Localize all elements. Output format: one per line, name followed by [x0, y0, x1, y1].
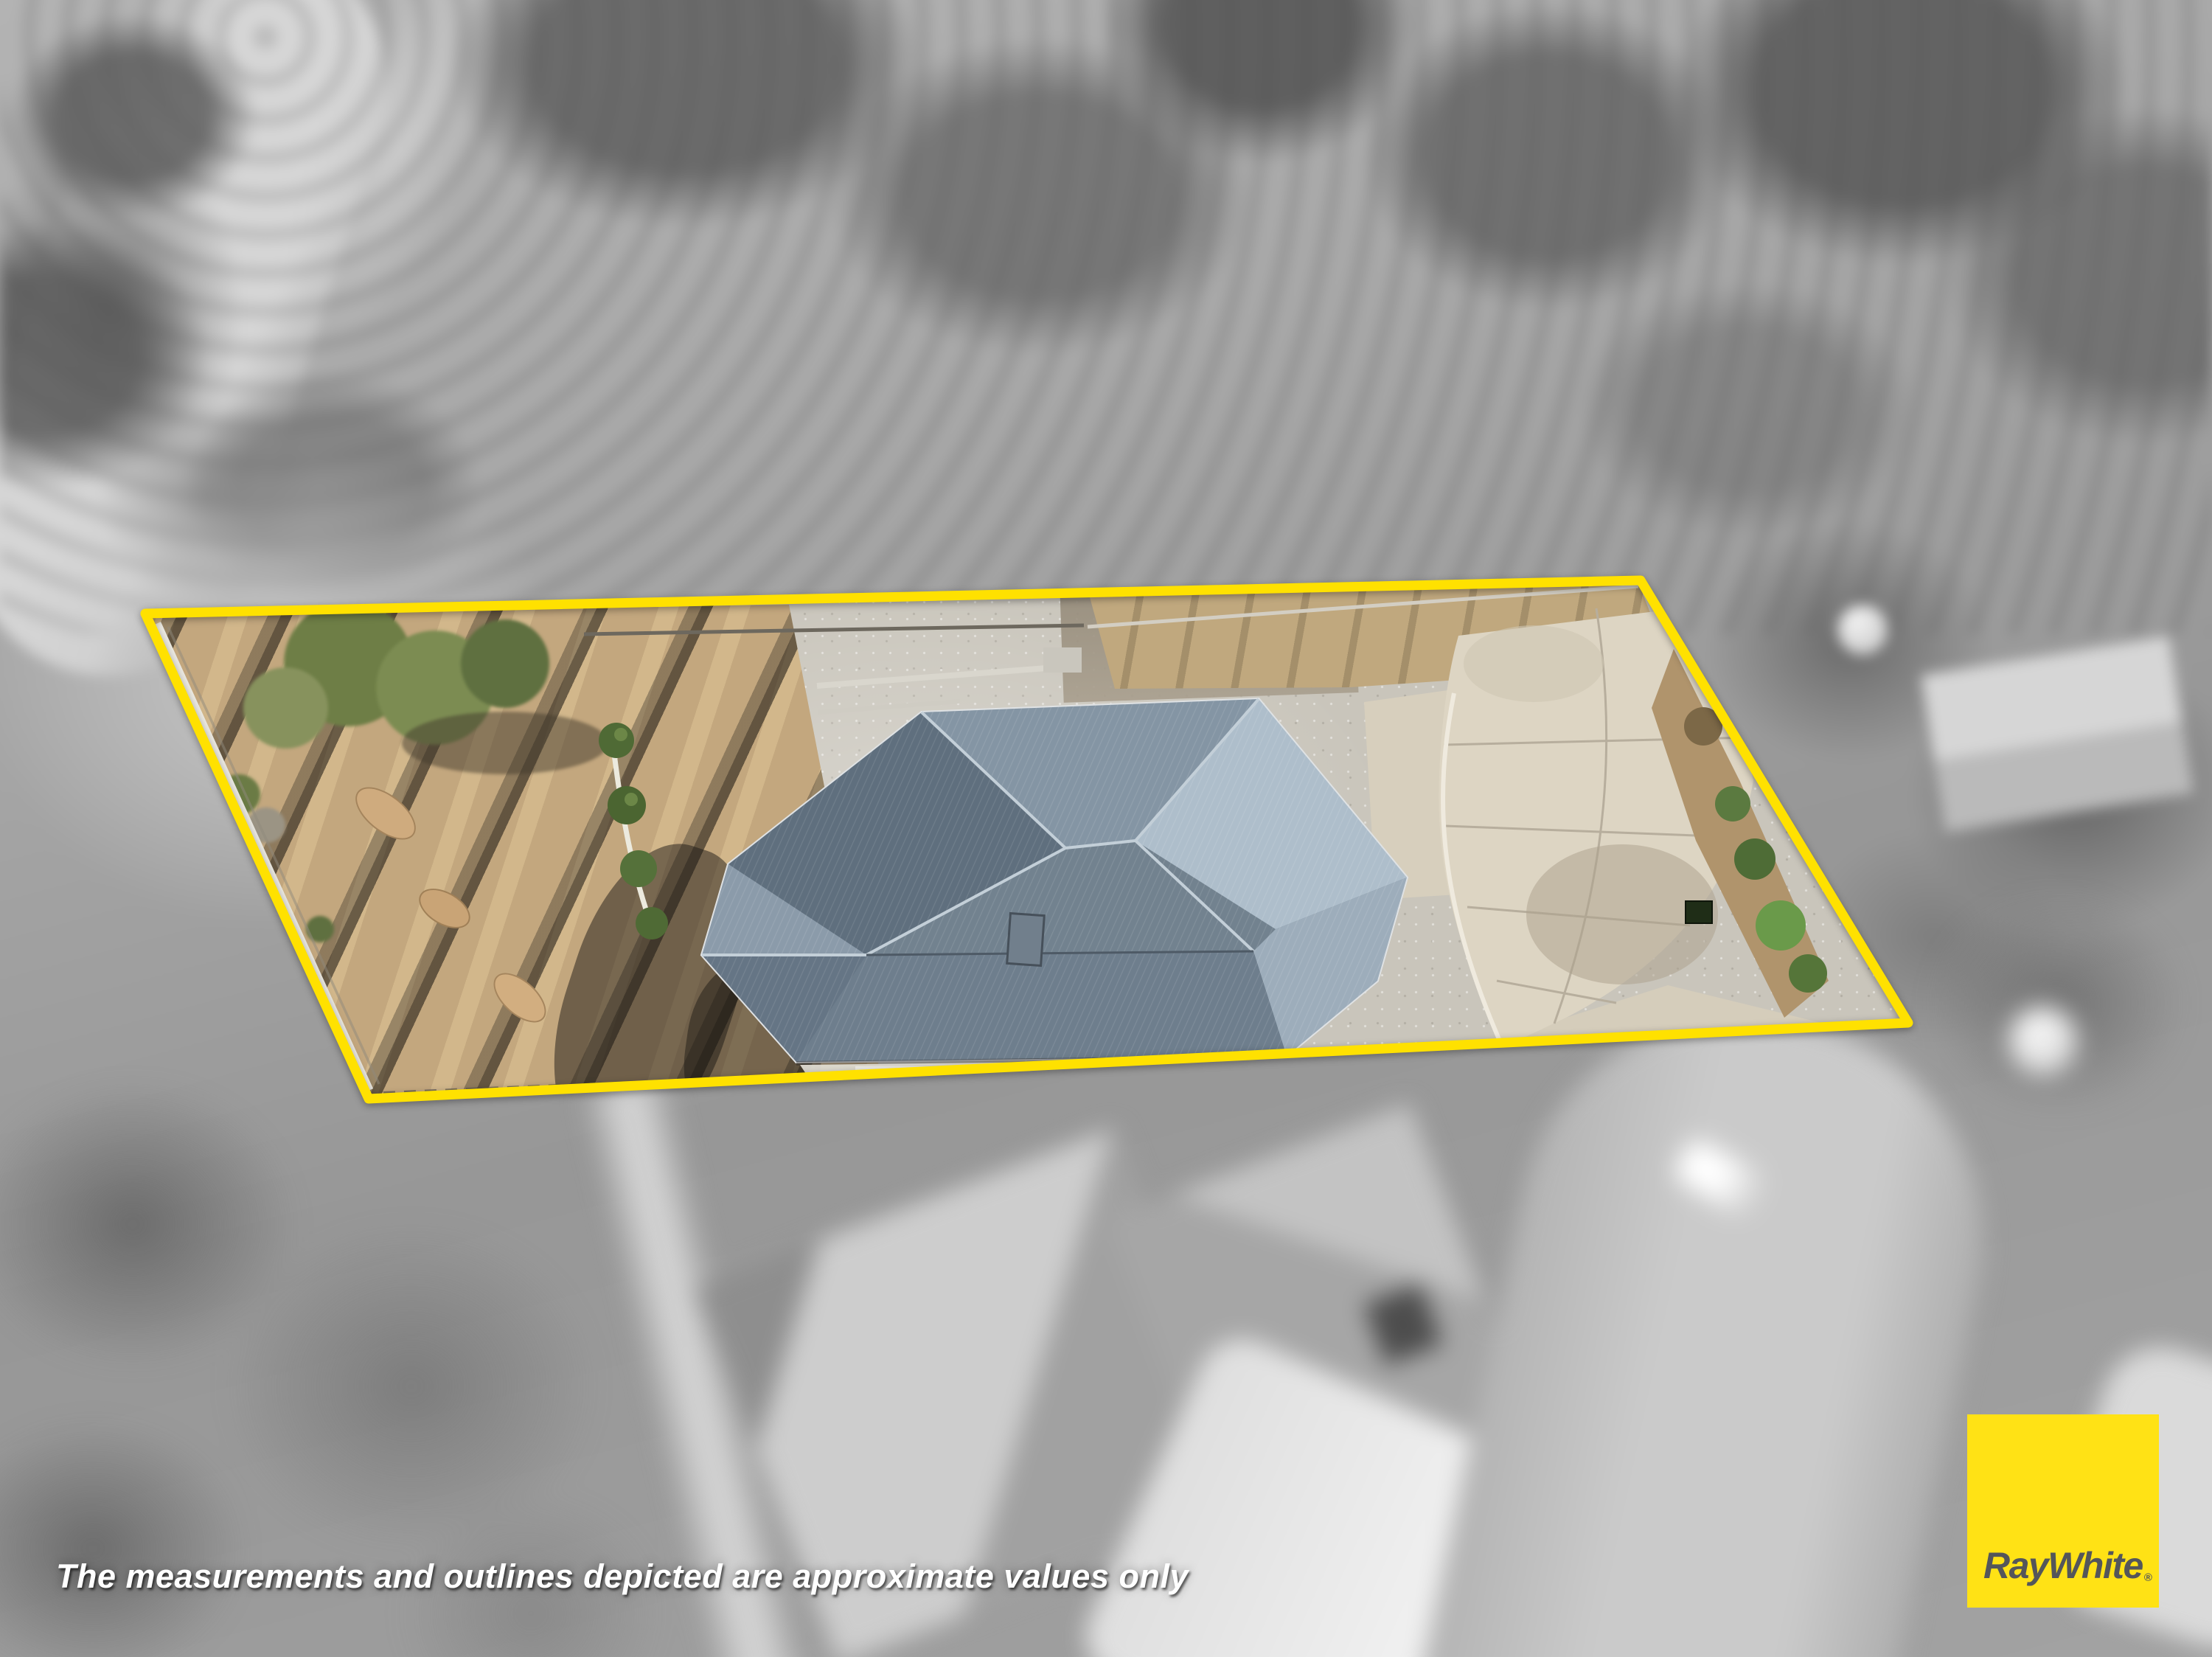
aerial-photo-scene: The measurements and outlines depicted a…: [0, 0, 2212, 1657]
registered-trademark-icon: ®: [2144, 1571, 2152, 1584]
disclaimer-text: The measurements and outlines depicted a…: [56, 1557, 1189, 1596]
boundary-polygon: [145, 580, 1908, 1099]
raywhite-logo: RayWhite®: [1967, 1414, 2159, 1608]
boundary-overlay: [0, 0, 2212, 1657]
raywhite-wordmark: RayWhite®: [1983, 1544, 2151, 1587]
raywhite-wordmark-text: RayWhite: [1983, 1545, 2143, 1586]
